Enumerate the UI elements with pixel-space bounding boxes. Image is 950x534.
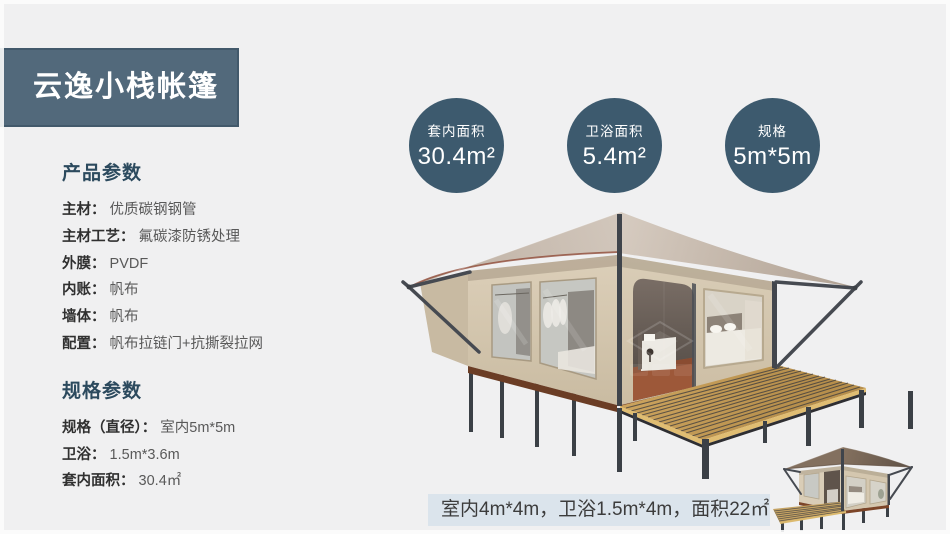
- param-row: 外膜： PVDF: [62, 251, 402, 278]
- param-label: 规格（直径）：: [62, 420, 156, 436]
- param-row: 内账： 帆布: [62, 277, 402, 304]
- param-value: 室内5m*5m: [160, 420, 235, 436]
- param-value: PVDF: [110, 256, 149, 272]
- dimensions-caption: 室内4m*4m，卫浴1.5m*4m，面积22㎡: [428, 494, 770, 526]
- page-title: 云逸小栈帐篷: [2, 50, 237, 125]
- param-value: 帆布: [110, 282, 139, 298]
- stat-circle-size: 规格 5m*5m: [725, 98, 820, 193]
- param-label: 主材工艺：: [62, 229, 135, 245]
- corner-pole: [617, 214, 622, 406]
- product-params-heading: 产品参数: [62, 158, 402, 185]
- stat-label: 规格: [758, 120, 787, 140]
- param-value: 优质碳钢钢管: [110, 202, 197, 218]
- stat-value: 30.4m²: [418, 143, 496, 171]
- side-window-2: [540, 278, 596, 379]
- param-row: 主材工艺： 氟碳漆防锈处理: [62, 224, 402, 251]
- main-tent-render: [403, 212, 913, 479]
- stat-circle-interior-area: 套内面积 30.4m²: [409, 98, 504, 193]
- param-label: 内账：: [62, 282, 106, 298]
- param-value: 30.4㎡: [139, 473, 182, 489]
- title-banner: 云逸小栈帐篷: [0, 48, 239, 127]
- param-label: 配置：: [62, 336, 106, 352]
- param-value: 氟碳漆防锈处理: [139, 229, 241, 245]
- front-window: [704, 289, 763, 368]
- stat-value: 5m*5m: [733, 143, 812, 171]
- stat-label: 套内面积: [428, 120, 486, 140]
- side-window-1: [492, 282, 531, 361]
- param-row: 主材： 优质碳钢钢管: [62, 197, 402, 224]
- param-row: 套内面积： 30.4㎡: [62, 468, 402, 495]
- small-tent-render: [773, 447, 912, 532]
- param-row: 墙体： 帆布: [62, 304, 402, 331]
- param-row: 卫浴： 1.5m*3.6m: [62, 442, 402, 469]
- stat-value: 5.4m²: [583, 143, 647, 171]
- param-label: 主材：: [62, 202, 106, 218]
- param-value: 帆布: [110, 309, 139, 325]
- spec-params-heading: 规格参数: [62, 376, 402, 403]
- stat-label: 卫浴面积: [586, 120, 644, 140]
- param-value: 1.5m*3.6m: [110, 447, 180, 463]
- stat-circle-bathroom-area: 卫浴面积 5.4m²: [567, 98, 662, 193]
- parameters-panel: 产品参数 主材： 优质碳钢钢管 主材工艺： 氟碳漆防锈处理 外膜： PVDF 内…: [62, 158, 402, 495]
- slide-background: 云逸小栈帐篷 产品参数 主材： 优质碳钢钢管 主材工艺： 氟碳漆防锈处理 外膜：…: [0, 0, 950, 534]
- param-label: 卫浴：: [62, 447, 106, 463]
- param-row: 配置： 帆布拉链门+抗撕裂拉网: [62, 331, 402, 358]
- param-label: 墙体：: [62, 309, 106, 325]
- param-row: 规格（直径）： 室内5m*5m: [62, 415, 402, 442]
- param-value: 帆布拉链门+抗撕裂拉网: [110, 336, 263, 352]
- param-label: 外膜：: [62, 256, 106, 272]
- right-corner-pole: [772, 281, 777, 369]
- param-label: 套内面积：: [62, 473, 135, 489]
